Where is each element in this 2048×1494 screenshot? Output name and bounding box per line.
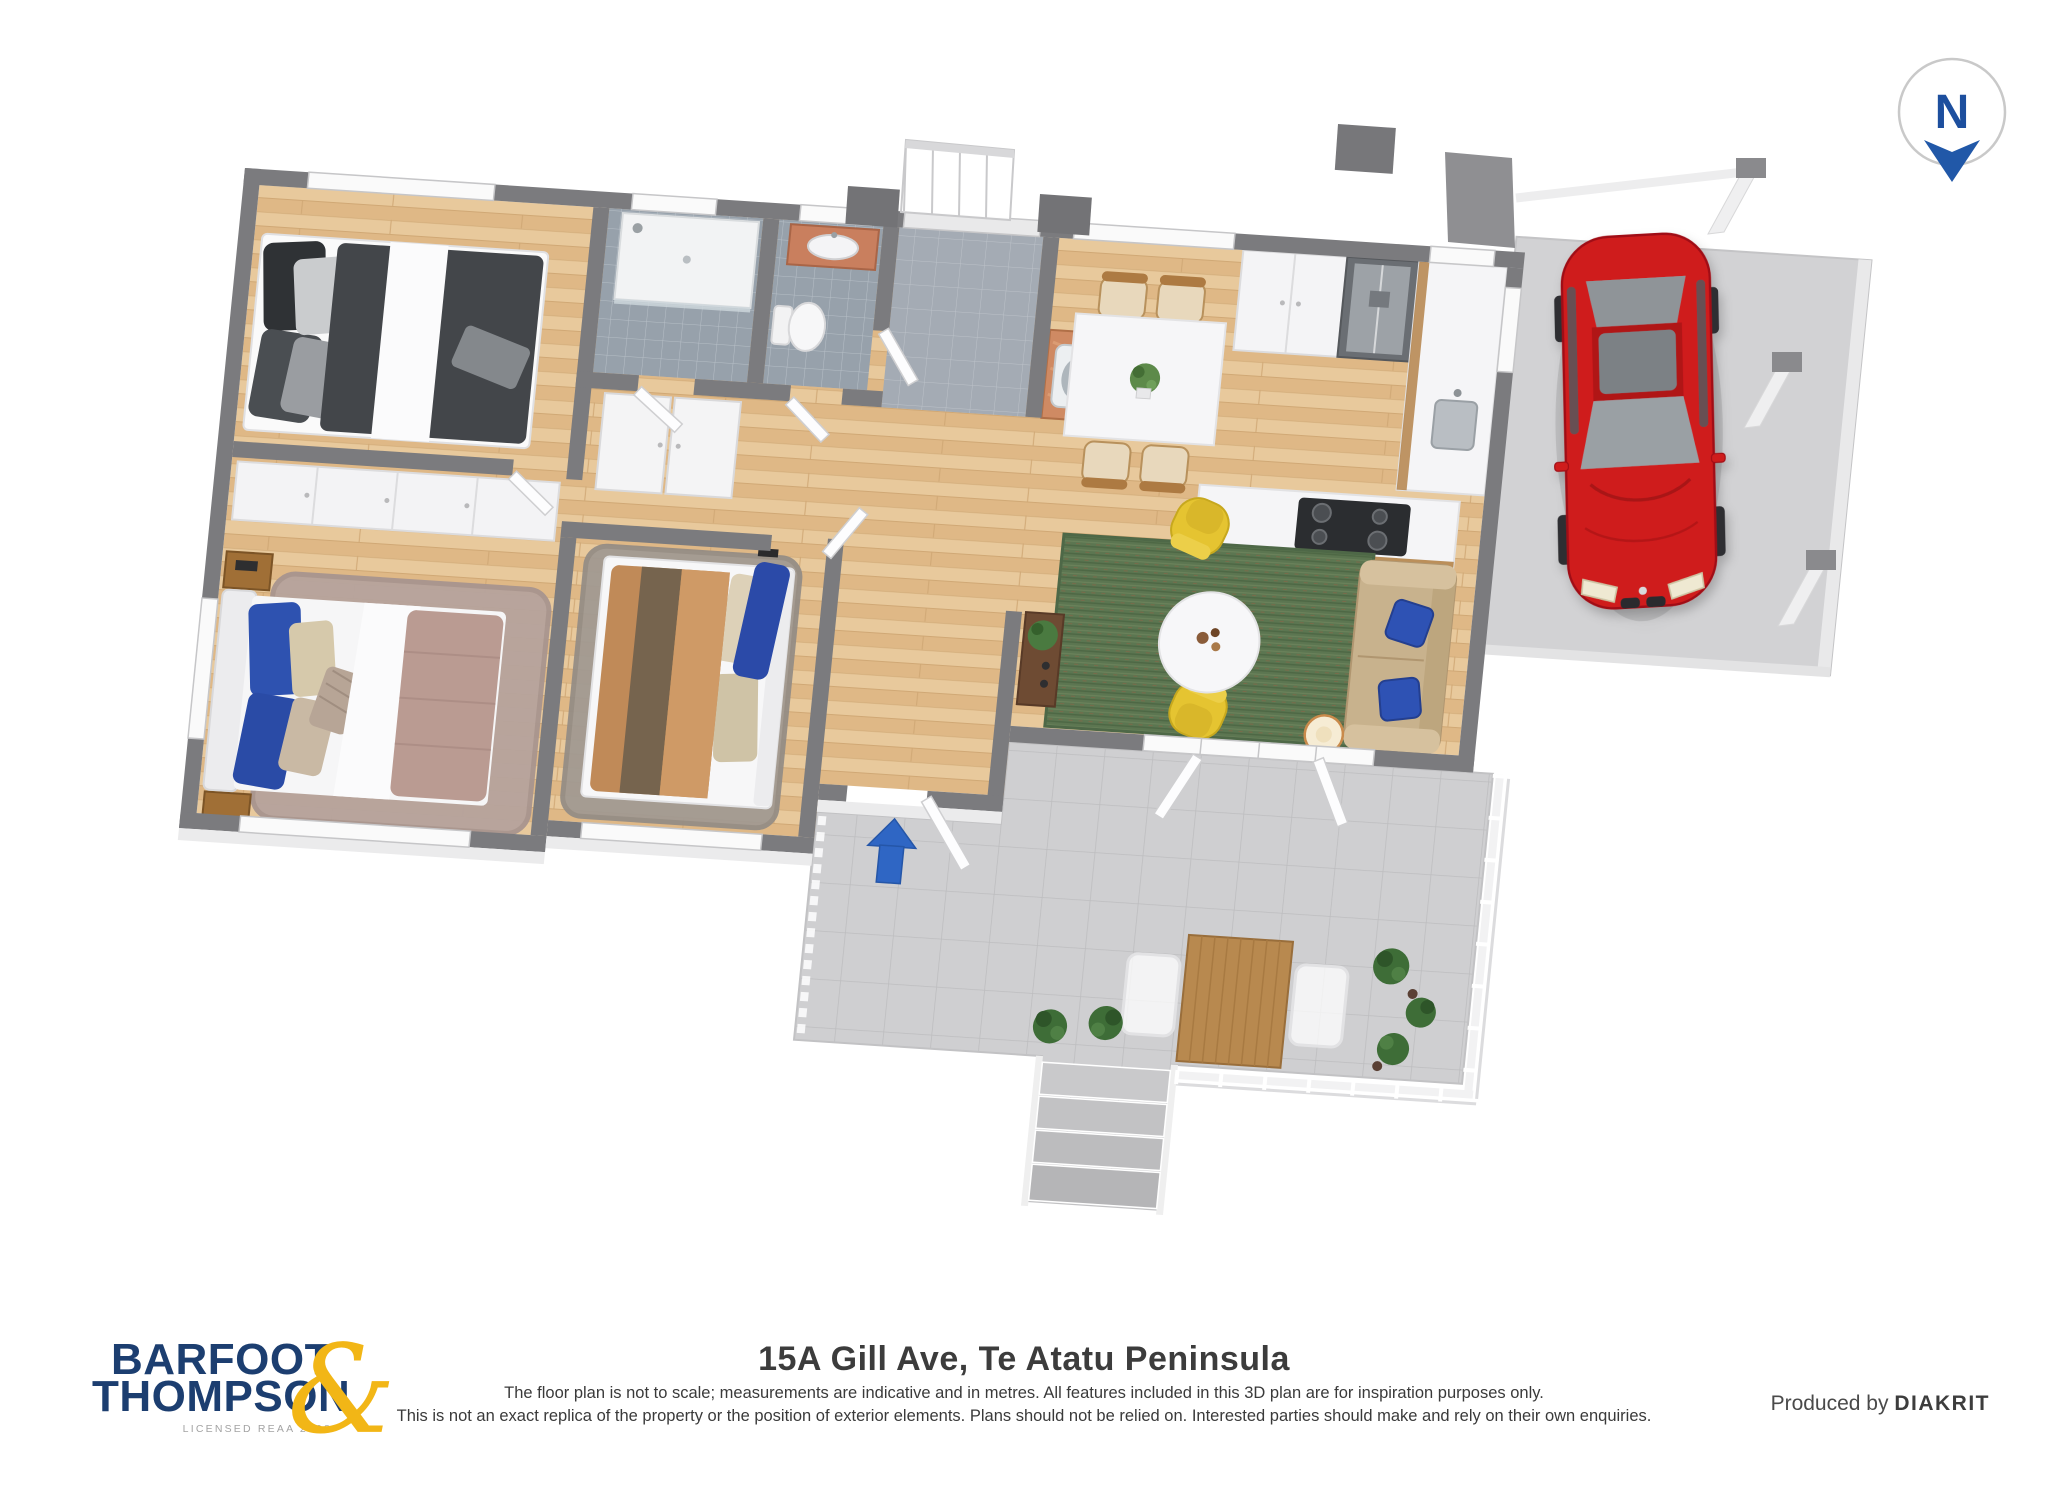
compass-north-indicator: N [1899,59,2005,182]
sofa [1343,560,1458,754]
produced-by-prefix: Produced by [1771,1392,1895,1415]
carport [1475,216,1874,678]
bathroom [614,213,759,310]
bedroom-3 [561,537,803,829]
floorplan-page: N BARFOOT THOMPSON & LICENSED REAA 2008 … [0,0,2048,1494]
red-car [1550,229,1729,626]
deck-stairs [1021,1056,1178,1215]
master-bedroom [200,551,553,845]
toilet [771,301,828,352]
wall-cap [1335,124,1396,174]
disclaimer-line2: This is not an exact replica of the prop… [0,1407,2048,1426]
property-address-title: 15A Gill Ave, Te Atatu Peninsula [0,1340,2048,1379]
wall-cap [1037,194,1092,236]
wall-panel [1445,152,1515,248]
cooktop [1294,497,1411,556]
produced-by: Produced by DIAKRIT [1771,1392,1990,1416]
bedroom-1 [243,234,549,449]
diakrit-brand: DIAKRIT [1894,1392,1990,1415]
kitchen-sink [1431,400,1478,451]
floorplan-3d: N [0,0,2048,1494]
outdoor-chair [1121,953,1181,1036]
media-console [1017,612,1064,707]
mauve-duvet [390,610,505,802]
compass-letter: N [1935,86,1970,139]
entry-foyer-floor [881,227,1043,417]
fridge [1337,257,1419,362]
disclaimer-line1: The floor plan is not to scale; measurem… [0,1384,2048,1403]
blue-cushion [1378,677,1421,721]
outdoor-chair [1289,964,1349,1047]
wall-cap [845,186,900,228]
window [1429,246,1495,266]
